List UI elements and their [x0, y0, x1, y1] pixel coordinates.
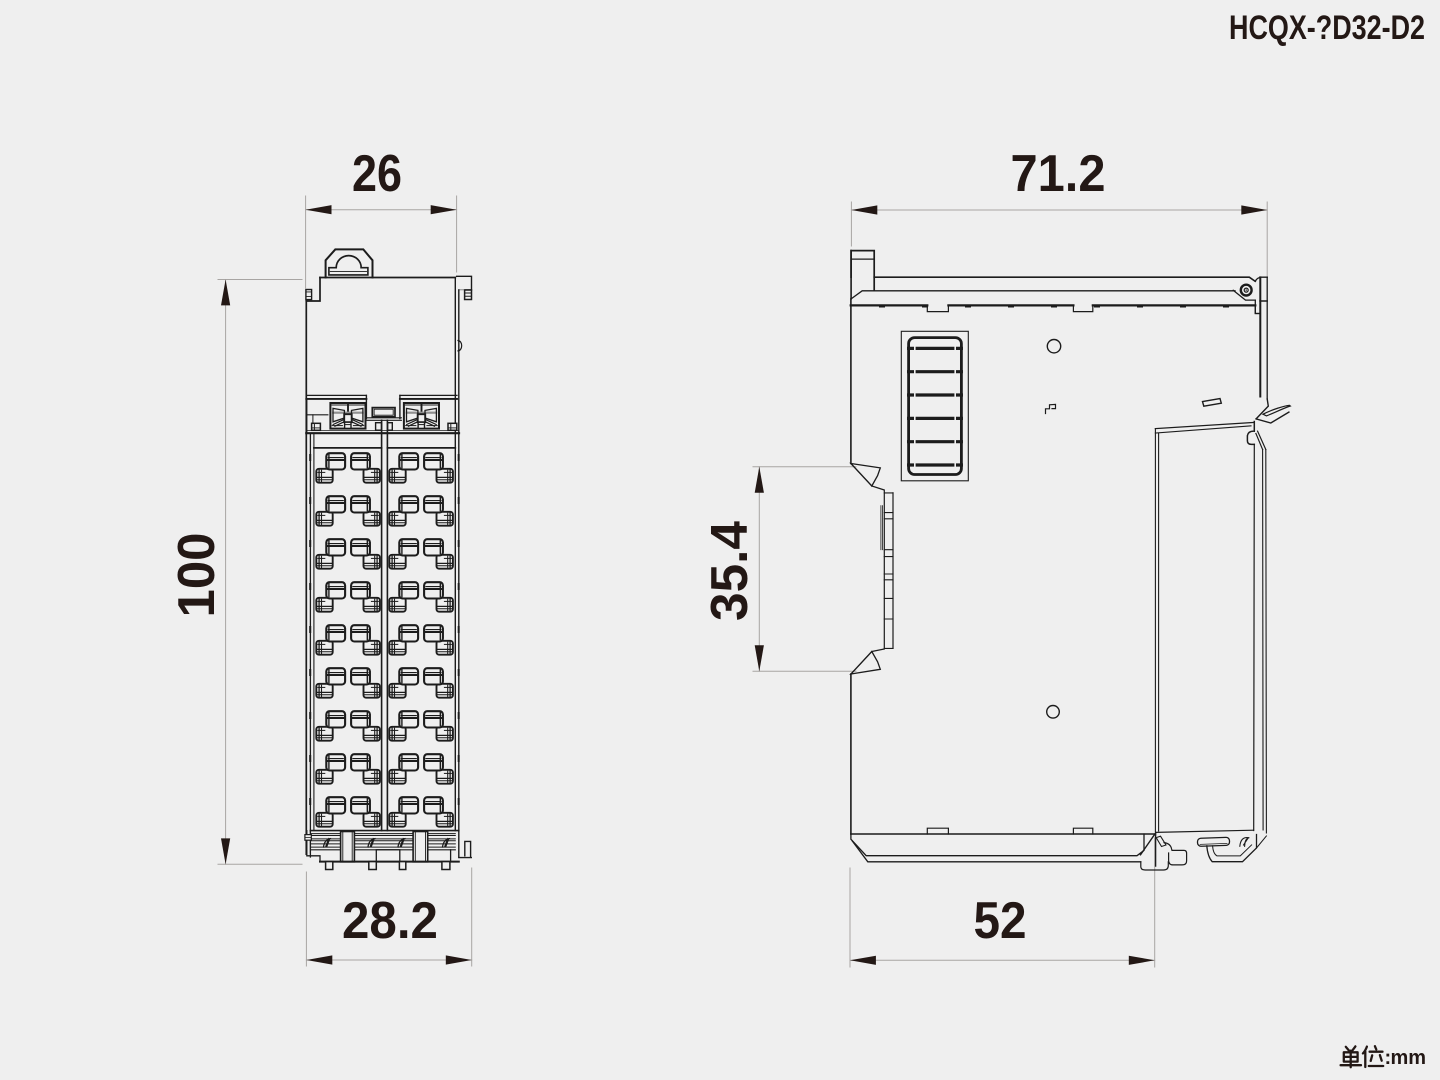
svg-text:100: 100	[168, 533, 226, 618]
svg-text:28.2: 28.2	[342, 892, 438, 950]
svg-text:52: 52	[974, 892, 1027, 950]
svg-text:71.2: 71.2	[1011, 145, 1106, 203]
svg-text:mm: mm	[1391, 1047, 1427, 1069]
svg-text:35.4: 35.4	[701, 521, 759, 621]
svg-text:26: 26	[352, 145, 402, 203]
svg-text:HCQX-?D32-D2: HCQX-?D32-D2	[1229, 9, 1425, 47]
